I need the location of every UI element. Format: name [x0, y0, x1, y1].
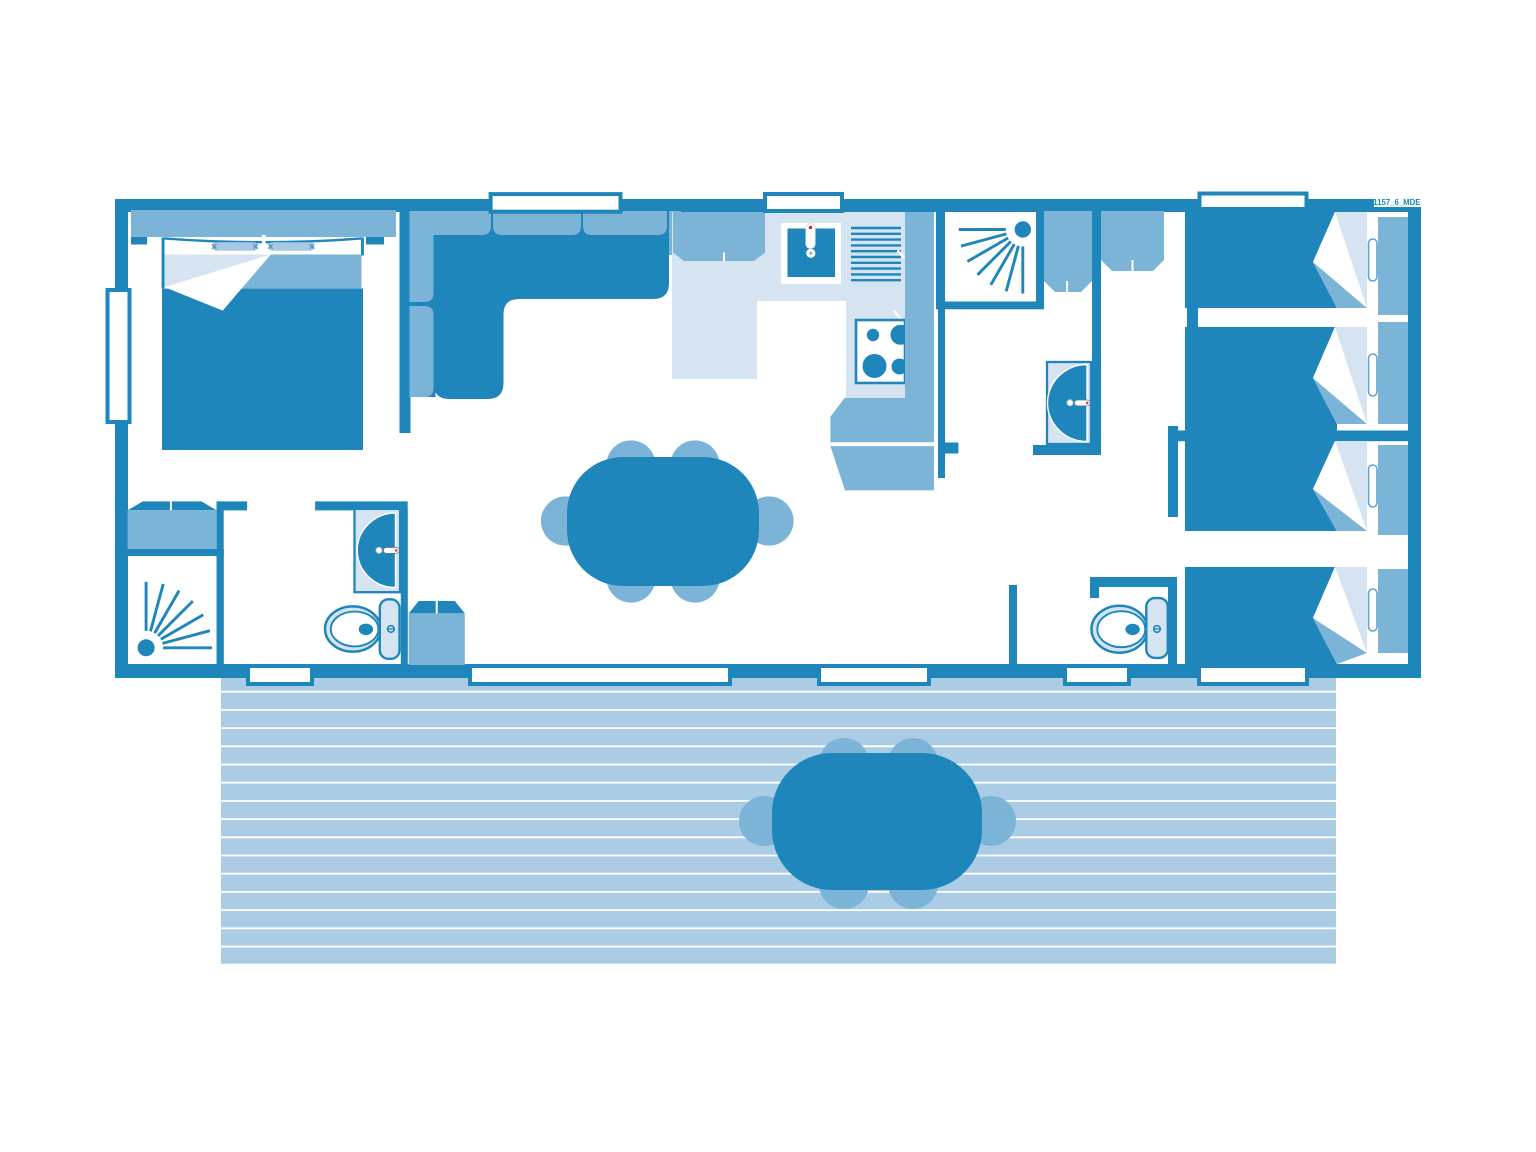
svg-text:1157_6_MDE: 1157_6_MDE — [1373, 198, 1420, 207]
